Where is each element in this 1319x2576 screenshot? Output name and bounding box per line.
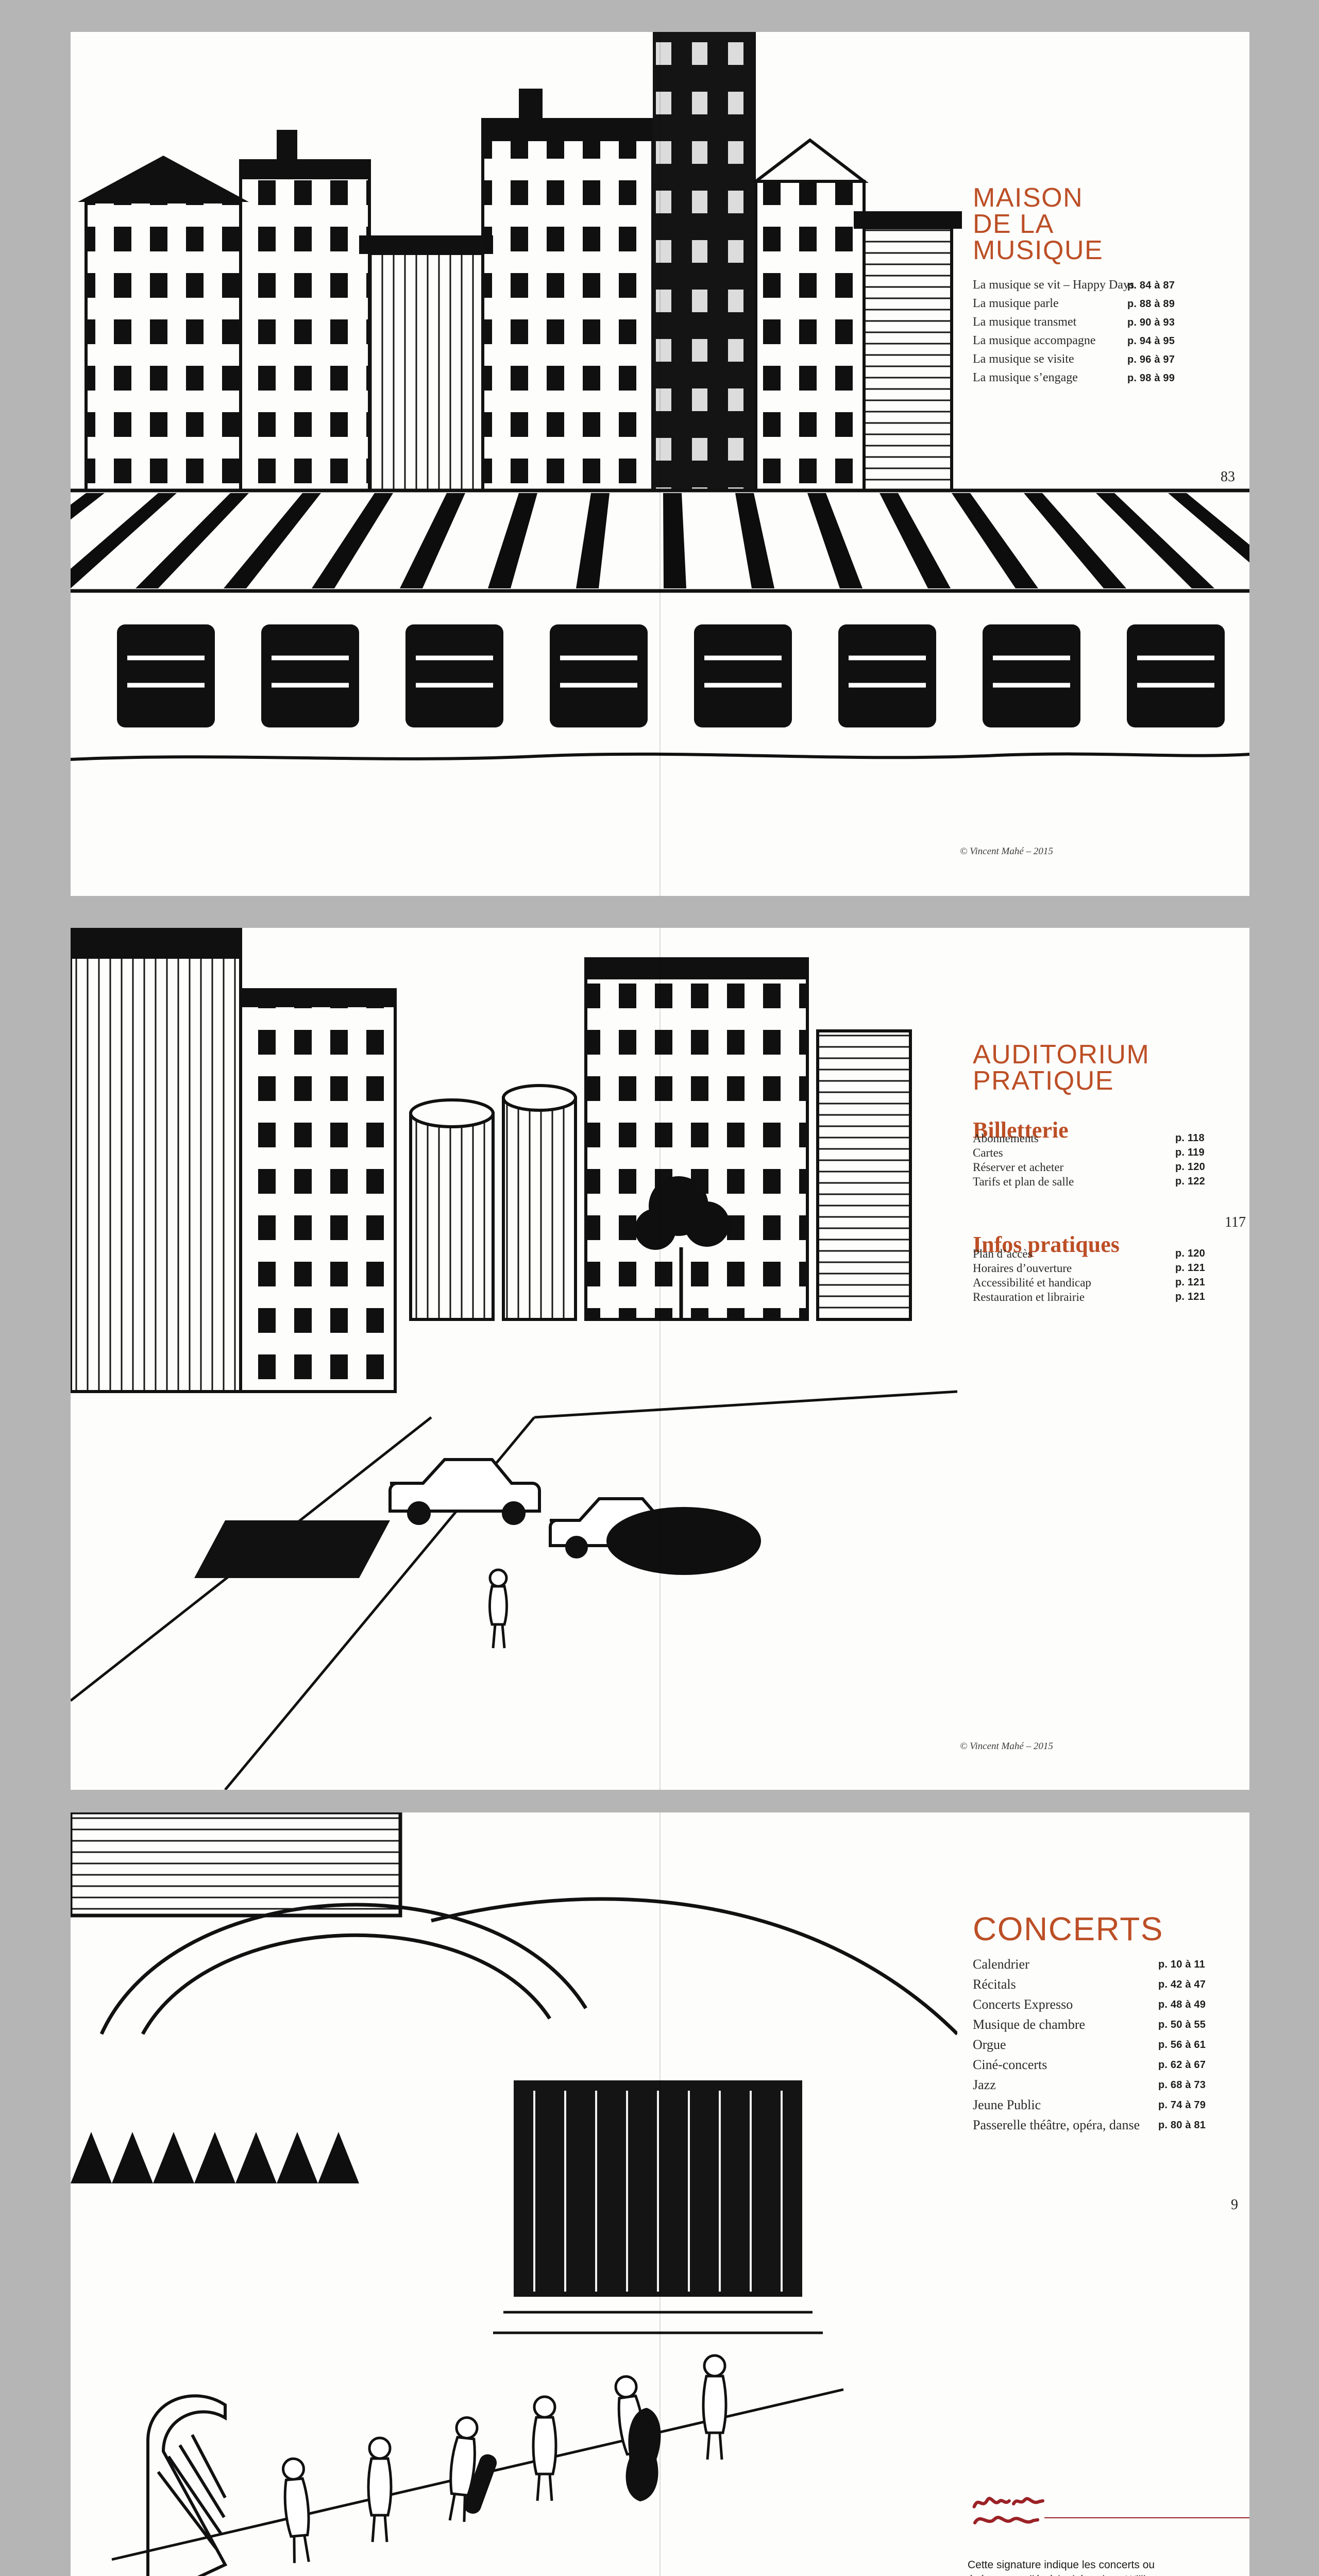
toc-label: Plan d’accès (973, 1247, 1033, 1260)
toc-label: Calendrier (973, 1957, 1029, 1972)
toc-pages: p. 120 (1175, 1248, 1205, 1260)
toc-label: Récitals (973, 1977, 1016, 1992)
toc-label: Horaires d’ouverture (973, 1262, 1072, 1275)
toc-pages: p. 48 à 49 (1158, 1999, 1206, 2011)
toc-row: Tarifs et plan de sallep. 122 (973, 1175, 1249, 1190)
toc-row: Calendrierp. 10 à 11 (973, 1957, 1249, 1977)
section-title-concerts: CONCERTS (973, 1913, 1163, 1945)
title-line: PRATIQUE (973, 1068, 1149, 1094)
toc-pages: p. 74 à 79 (1158, 2099, 1206, 2111)
toc-row: Plan d’accèsp. 120 (973, 1247, 1249, 1262)
signature-note: Cette signature indique les concerts ou … (968, 2557, 1215, 2576)
title-line: MAISON (973, 185, 1103, 211)
toc-pages: p. 84 à 87 (1127, 280, 1175, 292)
toc-label: La musique accompagne (973, 334, 1096, 347)
toc-label: Orgue (973, 2037, 1006, 2052)
toc-pages: p. 119 (1175, 1147, 1205, 1159)
toc-label: Jazz (973, 2077, 996, 2092)
toc-row: Musique de chambrep. 50 à 55 (973, 2017, 1249, 2037)
brochure-scan: MAISON DE LA MUSIQUE La musique se vit –… (0, 0, 1319, 2576)
shakespeare-signature (971, 2490, 1059, 2532)
toc-label: Jeune Public (973, 2097, 1041, 2112)
toc-label: Musique de chambre (973, 2017, 1085, 2032)
toc-row: Orguep. 56 à 61 (973, 2037, 1249, 2057)
page-gutter (659, 1812, 661, 2576)
toc-row: Réserver et acheterp. 120 (973, 1161, 1249, 1175)
toc-label: Passerelle théâtre, opéra, danse (973, 2117, 1140, 2132)
toc-label: Réserver et acheter (973, 1161, 1063, 1174)
toc-pages: p. 50 à 55 (1158, 2019, 1206, 2031)
toc-pages: p. 80 à 81 (1158, 2120, 1206, 2131)
toc-label: Ciné-concerts (973, 2057, 1047, 2072)
title-line: AUDITORIUM (973, 1042, 1149, 1068)
street-scene-illustration (71, 928, 957, 1790)
toc-pages: p. 120 (1175, 1161, 1205, 1173)
page-number: 83 (1221, 469, 1235, 485)
toc-row: Passerelle théâtre, opéra, dansep. 80 à … (973, 2117, 1249, 2138)
toc-label: Tarifs et plan de salle (973, 1175, 1074, 1188)
toc-label: La musique transmet (973, 315, 1076, 329)
toc-maison: La musique se vit – Happy Daysp. 84 à 87… (973, 278, 1249, 389)
toc-label: Abonnements (973, 1132, 1039, 1145)
infos-pratiques-list: Plan d’accèsp. 120 Horaires d’ouverturep… (973, 1247, 1249, 1305)
section-title-maison: MAISON DE LA MUSIQUE (973, 185, 1103, 264)
toc-row: Restauration et librairiep. 121 (973, 1291, 1249, 1305)
toc-label: La musique se vit – Happy Days (973, 278, 1134, 292)
toc-label: Restauration et librairie (973, 1291, 1085, 1303)
spread-maison-de-la-musique: MAISON DE LA MUSIQUE La musique se vit –… (71, 32, 1249, 896)
toc-label: La musique s’engage (973, 371, 1078, 384)
toc-row: Accessibilité et handicapp. 121 (973, 1276, 1249, 1291)
page-gutter (659, 32, 661, 896)
toc-row: Concerts Expressop. 48 à 49 (973, 1997, 1249, 2017)
toc-row: Jazzp. 68 à 73 (973, 2077, 1249, 2097)
shakespeare-signature-icon (971, 2490, 1059, 2532)
toc-row: La musique s’engagep. 98 à 99 (973, 371, 1249, 389)
toc-row: La musique se vit – Happy Daysp. 84 à 87 (973, 278, 1249, 297)
toc-row: Jeune Publicp. 74 à 79 (973, 2097, 1249, 2117)
toc-row: Horaires d’ouverturep. 121 (973, 1262, 1249, 1276)
toc-pages: p. 98 à 99 (1127, 372, 1175, 384)
toc-pages: p. 88 à 89 (1127, 298, 1175, 310)
toc-row: Abonnementsp. 118 (973, 1132, 1249, 1146)
signature-rule (1044, 2517, 1249, 2518)
title-line: MUSIQUE (973, 238, 1103, 264)
toc-pages: p. 62 à 67 (1158, 2059, 1206, 2071)
toc-pages: p. 96 à 97 (1127, 354, 1175, 366)
toc-row: La musique transmetp. 90 à 93 (973, 315, 1249, 334)
page-gutter (659, 928, 661, 1790)
toc-row: Récitalsp. 42 à 47 (973, 1977, 1249, 1997)
toc-row: Cartesp. 119 (973, 1146, 1249, 1161)
toc-pages: p. 56 à 61 (1158, 2039, 1206, 2051)
toc-label: Concerts Expresso (973, 1997, 1073, 2012)
toc-label: La musique se visite (973, 352, 1074, 366)
toc-row: La musique parlep. 88 à 89 (973, 297, 1249, 315)
toc-pages: p. 94 à 95 (1127, 335, 1175, 347)
toc-label: La musique parle (973, 297, 1059, 310)
illustration-credit: © Vincent Mahé – 2015 (960, 1741, 1053, 1752)
toc-pages: p. 121 (1175, 1262, 1205, 1274)
toc-pages: p. 68 à 73 (1158, 2079, 1206, 2091)
billetterie-list: Abonnementsp. 118 Cartesp. 119 Réserver … (973, 1132, 1249, 1190)
section-title-auditorium: AUDITORIUM PRATIQUE (973, 1042, 1149, 1094)
auditorium-queue-illustration (71, 1812, 957, 2576)
toc-pages: p. 122 (1175, 1176, 1205, 1188)
title-line: CONCERTS (973, 1913, 1163, 1945)
toc-label: Accessibilité et handicap (973, 1276, 1091, 1289)
toc-pages: p. 10 à 11 (1158, 1959, 1205, 1971)
toc-label: Cartes (973, 1146, 1003, 1159)
toc-pages: p. 90 à 93 (1127, 317, 1175, 329)
spread-concerts: CONCERTS Calendrierp. 10 à 11 Récitalsp.… (71, 1812, 1249, 2576)
title-line: DE LA (973, 211, 1103, 238)
page-number: 117 (1225, 1214, 1246, 1231)
toc-row: Ciné-concertsp. 62 à 67 (973, 2057, 1249, 2077)
toc-row: La musique se visitep. 96 à 97 (973, 352, 1249, 371)
toc-row: La musique accompagnep. 94 à 95 (973, 334, 1249, 352)
page-number: 9 (1231, 2197, 1238, 2213)
toc-pages: p. 42 à 47 (1158, 1979, 1206, 1991)
toc-concerts: Calendrierp. 10 à 11 Récitalsp. 42 à 47 … (973, 1957, 1249, 2138)
illustration-credit: © Vincent Mahé – 2015 (960, 846, 1053, 857)
toc-pages: p. 121 (1175, 1291, 1205, 1303)
toc-pages: p. 121 (1175, 1277, 1205, 1289)
toc-pages: p. 118 (1175, 1132, 1205, 1144)
spread-auditorium-pratique: AUDITORIUM PRATIQUE Billetterie Abonneme… (71, 928, 1249, 1790)
